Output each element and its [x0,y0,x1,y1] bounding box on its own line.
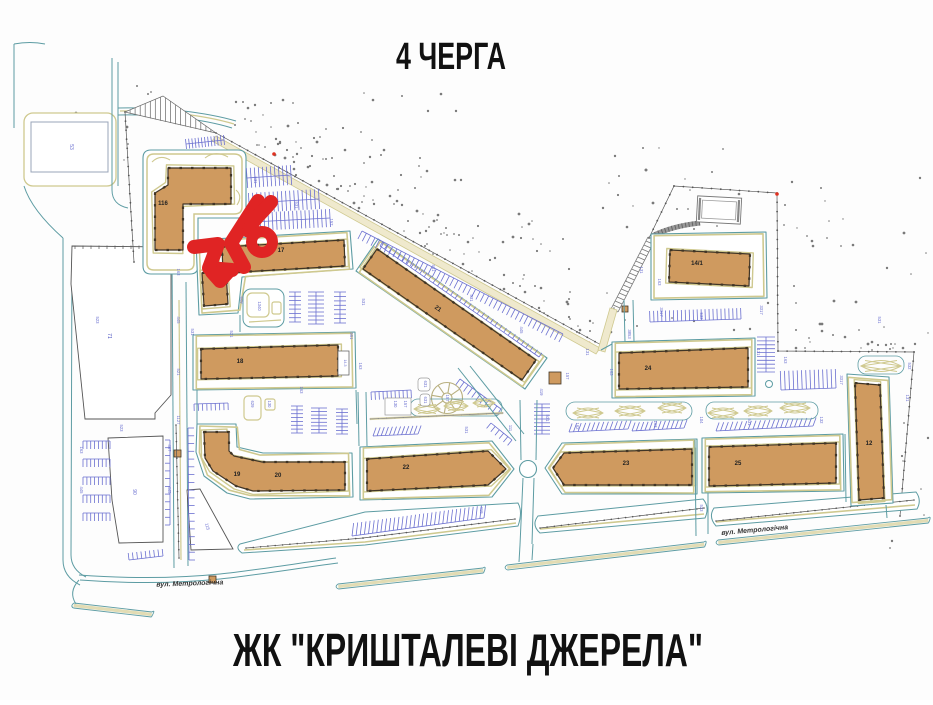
svg-text:521: 521 [229,331,234,339]
svg-text:24: 24 [645,366,652,372]
svg-text:649: 649 [239,297,244,305]
svg-text:111: 111 [508,425,513,432]
svg-text:71: 71 [106,333,112,339]
svg-text:163: 163 [358,363,363,371]
svg-text:132: 132 [819,417,824,425]
svg-text:18: 18 [237,359,244,365]
svg-text:3317: 3317 [759,305,764,315]
svg-text:53: 53 [68,144,74,150]
svg-text:407: 407 [167,445,172,453]
svg-text:130: 130 [267,401,272,409]
svg-text:104: 104 [699,417,704,425]
svg-text:14-3: 14-3 [343,359,347,366]
svg-text:163: 163 [299,387,304,395]
svg-text:445: 445 [519,327,524,335]
svg-text:90: 90 [131,489,137,495]
svg-text:131: 131 [905,395,910,403]
svg-text:163: 163 [79,447,84,455]
svg-text:531: 531 [747,419,752,427]
svg-text:20: 20 [275,473,282,479]
svg-text:531: 531 [545,415,550,423]
svg-text:531: 531 [469,295,474,303]
svg-text:163: 163 [657,279,662,287]
svg-text:3853: 3853 [627,329,632,339]
svg-text:163: 163 [653,421,658,429]
svg-text:523: 523 [119,425,124,433]
svg-text:419: 419 [479,507,484,515]
svg-text:629: 629 [250,401,255,409]
svg-text:631: 631 [423,397,428,405]
svg-text:419: 419 [539,389,544,397]
svg-text:ЖК "КРИШТАЛЕВІ ДЖЕРЕЛА": ЖК "КРИШТАЛЕВІ ДЖЕРЕЛА" [232,624,703,676]
svg-text:131: 131 [585,349,590,357]
svg-text:17: 17 [278,248,285,254]
svg-text:551: 551 [349,333,354,341]
svg-text:131: 131 [756,349,761,357]
svg-text:631: 631 [423,381,428,389]
svg-text:14/1: 14/1 [691,261,703,267]
svg-text:531: 531 [361,299,366,307]
svg-text:116: 116 [158,201,168,207]
svg-text:163: 163 [176,269,181,277]
svg-text:163: 163 [609,369,614,377]
svg-text:19: 19 [234,472,241,478]
svg-text:531: 531 [431,265,436,273]
svg-text:531: 531 [253,177,258,185]
svg-text:531: 531 [294,202,299,210]
svg-text:131: 131 [639,267,644,275]
svg-text:531: 531 [464,427,469,435]
svg-text:445: 445 [176,317,181,325]
svg-text:157: 157 [403,401,408,409]
svg-text:533: 533 [699,313,704,321]
svg-text:3317: 3317 [659,307,664,317]
svg-text:1340: 1340 [257,301,262,311]
svg-text:157: 157 [329,219,334,227]
svg-text:445: 445 [79,487,84,495]
svg-text:3317: 3317 [839,375,844,385]
svg-text:521: 521 [176,369,181,377]
svg-text:523: 523 [699,505,704,513]
svg-text:12: 12 [866,441,873,447]
svg-text:531: 531 [877,317,882,325]
svg-text:130: 130 [393,401,398,409]
svg-text:531: 531 [190,329,195,337]
svg-text:157: 157 [565,373,570,381]
svg-text:23: 23 [623,461,630,467]
svg-text:532: 532 [907,363,912,371]
svg-text:4 ЧЕРГА: 4 ЧЕРГА [396,36,506,78]
svg-text:25: 25 [735,461,742,467]
svg-text:1127: 1127 [176,415,181,425]
svg-text:157: 157 [445,395,450,403]
svg-text:523: 523 [95,317,100,325]
svg-text:22: 22 [403,465,410,471]
svg-text:163: 163 [783,357,788,365]
svg-text:162: 162 [575,423,580,431]
svg-text:445: 445 [167,487,172,495]
